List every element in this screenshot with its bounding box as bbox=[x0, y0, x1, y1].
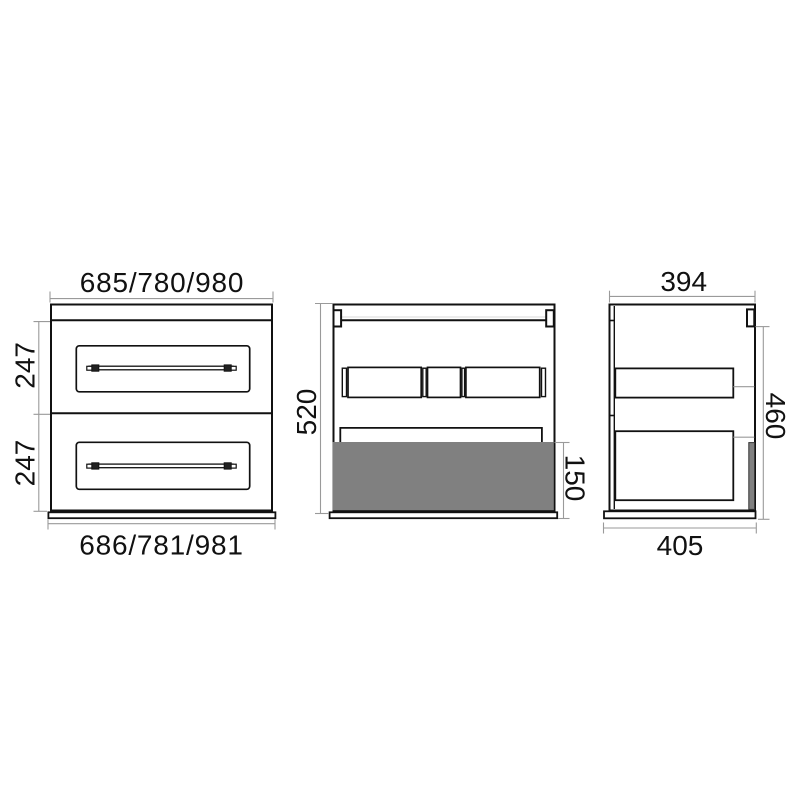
svg-text:460: 460 bbox=[760, 393, 791, 440]
svg-text:247: 247 bbox=[9, 440, 40, 487]
svg-text:405: 405 bbox=[657, 530, 704, 561]
svg-text:247: 247 bbox=[9, 342, 40, 389]
svg-text:686/781/981: 686/781/981 bbox=[79, 530, 244, 561]
svg-text:520: 520 bbox=[291, 389, 322, 436]
svg-text:150: 150 bbox=[560, 455, 591, 502]
svg-text:685/780/980: 685/780/980 bbox=[80, 267, 245, 298]
svg-text:394: 394 bbox=[660, 266, 707, 297]
